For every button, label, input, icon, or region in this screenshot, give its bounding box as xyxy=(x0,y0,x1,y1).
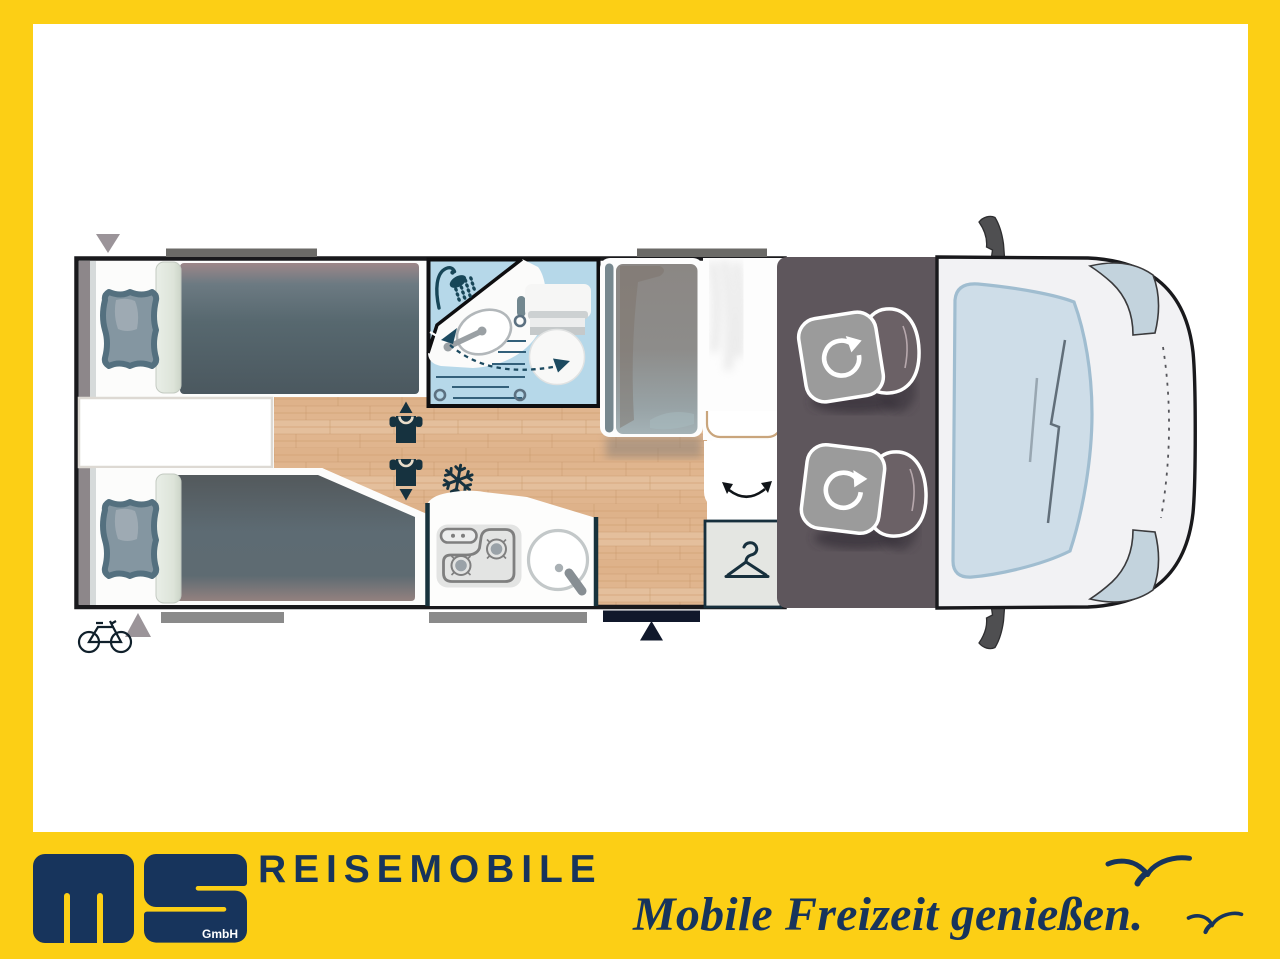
svg-text:Mobile Freizeit genießen.: Mobile Freizeit genießen. xyxy=(632,888,1143,941)
svg-text:REISEMOBILE: REISEMOBILE xyxy=(258,848,603,891)
svg-text:GmbH: GmbH xyxy=(202,927,238,941)
